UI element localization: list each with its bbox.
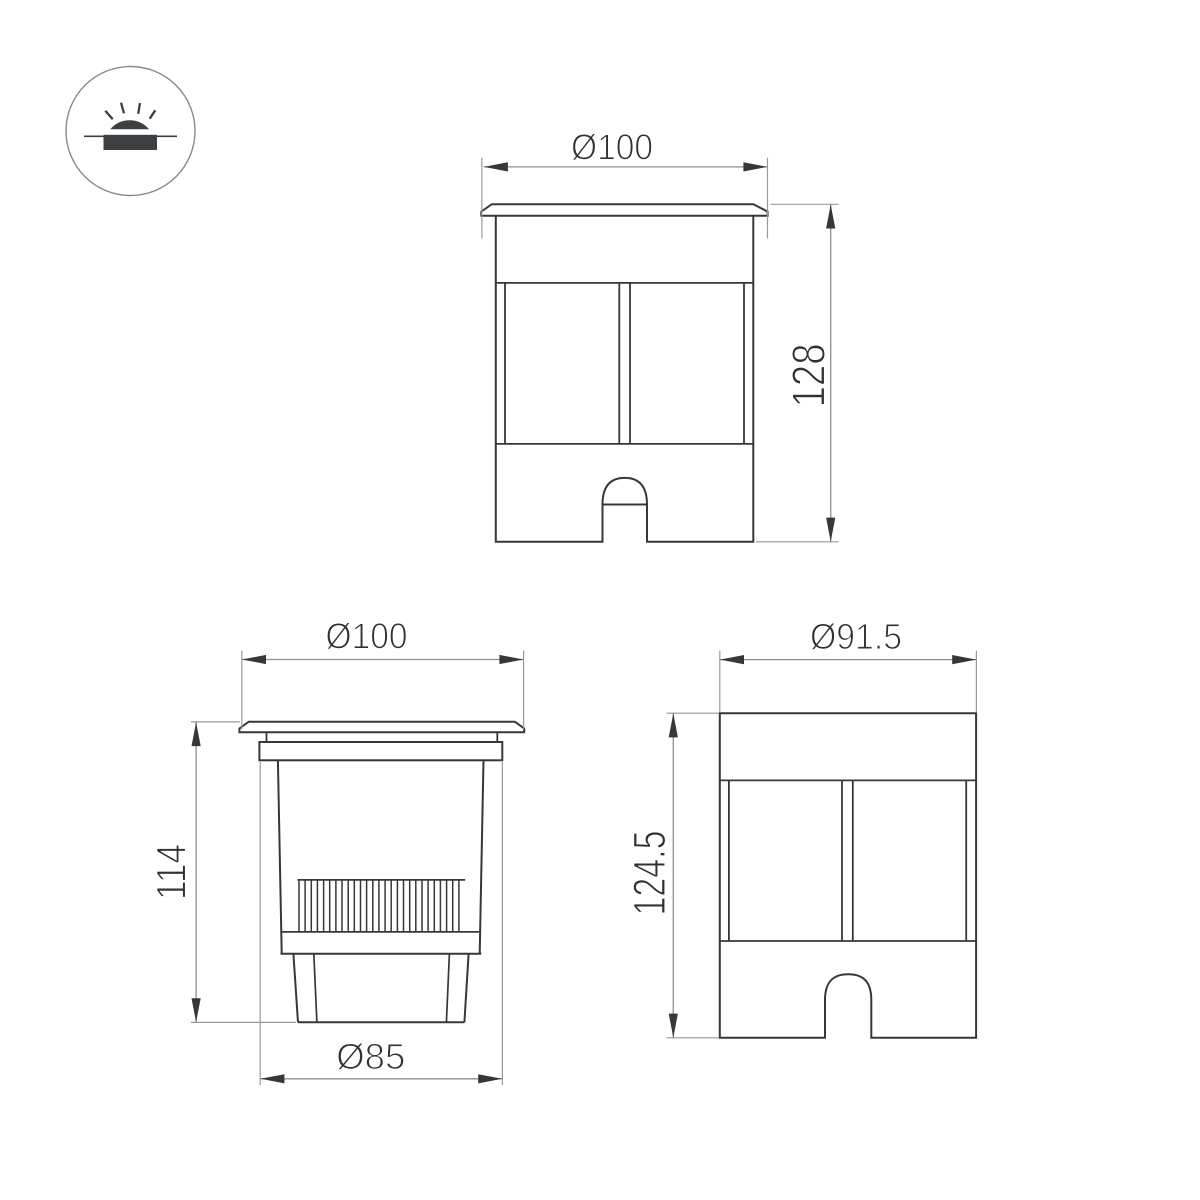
svg-text:Ø91.5: Ø91.5 [810,616,902,657]
svg-text:124.5: 124.5 [624,831,675,916]
svg-text:Ø85: Ø85 [336,1036,405,1077]
svg-text:114: 114 [148,844,195,900]
svg-text:Ø100: Ø100 [571,127,653,168]
svg-text:128: 128 [782,343,834,407]
svg-text:Ø100: Ø100 [326,616,408,657]
